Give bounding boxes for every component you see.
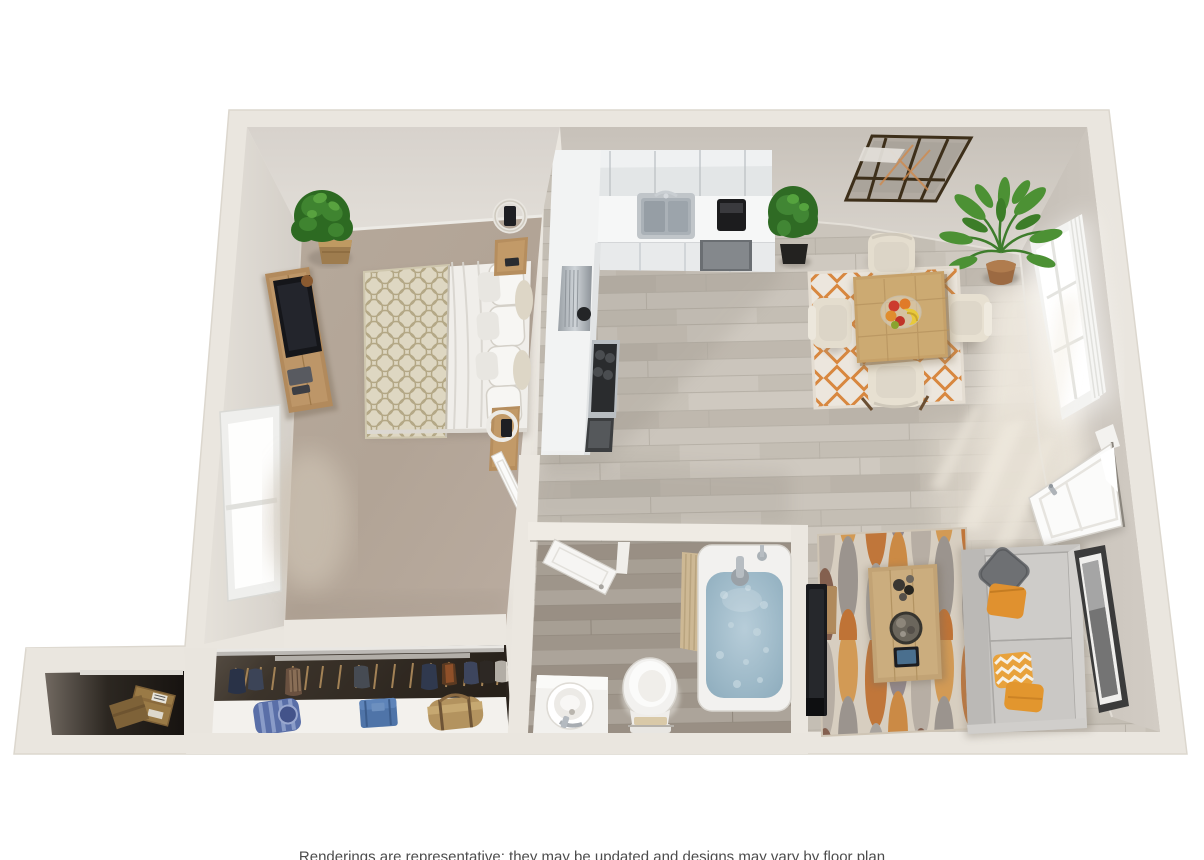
svg-text:Renderings are representative;: Renderings are representative; they may …	[299, 849, 885, 860]
